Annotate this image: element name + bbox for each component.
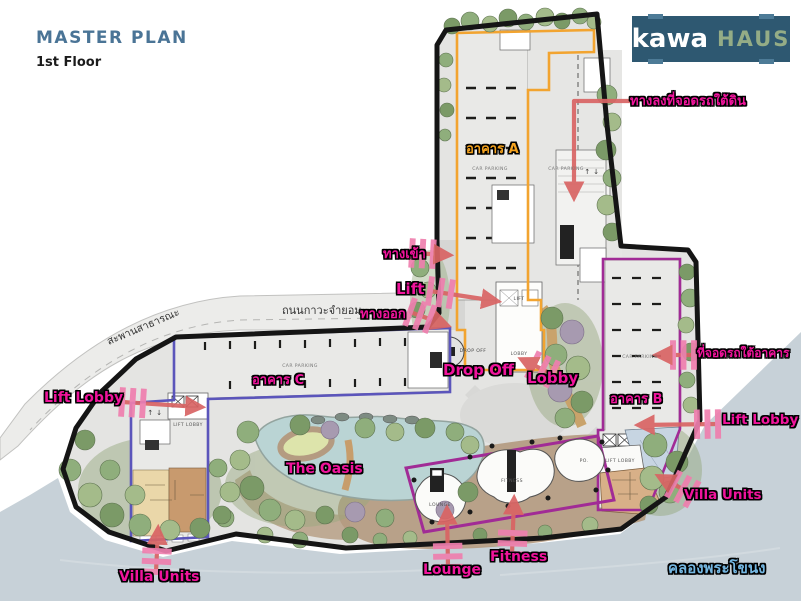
lobby-updown-arrows: ↑ ↓ [147,409,162,417]
kawa-haus-logo: kawa HAUS [632,16,790,62]
callout-the-oasis: The Oasis [286,461,363,477]
page-subtitle: 1st Floor [36,55,188,70]
callout-lounge: Lounge [423,562,481,578]
callout-drop-off: Drop Off [443,361,514,379]
car-parking-text-b: CAR PARKING [622,354,658,360]
lift-text: LIFT [514,296,525,302]
po-text: PO. [580,458,589,464]
arrow-lift-lobby-right [640,424,718,425]
callout-exit: ทางออก [360,303,406,324]
fitness-text: FITNESS [501,478,523,484]
callout-lobby: Lobby [527,369,578,387]
logo-word-kawa: kawa [632,26,708,52]
car-parking-text-ramp: CAR PARKING [548,166,584,172]
arrow-fitness [512,500,514,554]
arrow-villa-left [156,530,158,572]
callout-lift-lobby-right: Lift Lobby [722,412,798,428]
callout-parking-under-building: ที่จอดรถใต้อาคาร [697,344,789,363]
building-b [598,259,680,514]
car-parking-text-a: CAR PARKING [472,166,508,172]
arrow-lounge [447,510,448,567]
logo-tab [759,14,774,19]
callout-building-c: อาคาร C [252,369,304,390]
logo-tab [759,59,774,64]
lift-lobby-text-c: LIFT LOBBY [173,422,203,428]
callout-entrance: ทางเข้า [383,243,426,264]
callout-underground-ramp: ทางลงที่จอดรถใต้ดิน [630,90,746,111]
callout-building-b: อาคาร B [610,388,663,409]
callout-canal: คลองพระโขนง [668,556,765,580]
lobby-text: LOBBY [511,351,528,357]
lounge-text: LOUNGE [429,502,451,508]
callout-villa-units-left: Villa Units [119,569,199,585]
callout-villa-units-right: Villa Units [684,487,762,503]
logo-word-haus: HAUS [717,29,790,50]
road-name-label: ถนนกาวะจำยอม [282,301,362,319]
page-header: MASTER PLAN 1st Floor [36,28,188,70]
callout-lift-lobby-left: Lift Lobby [44,390,123,406]
drop-off-text: DROP OFF [460,348,487,354]
master-plan-page: CAR PARKING CAR PARKING CAR PARKING CAR … [0,0,801,601]
page-title: MASTER PLAN [36,28,188,48]
callout-fitness: Fitness [490,549,547,565]
lift-lobby-text-b: LIFT LOBBY [605,458,635,464]
callout-building-a: อาคาร A [466,138,519,159]
callout-lift: Lift [396,280,424,298]
logo-tab [648,59,663,64]
logo-tab [648,14,663,19]
ramp-updown-arrows: ↑ ↓ [584,168,599,176]
